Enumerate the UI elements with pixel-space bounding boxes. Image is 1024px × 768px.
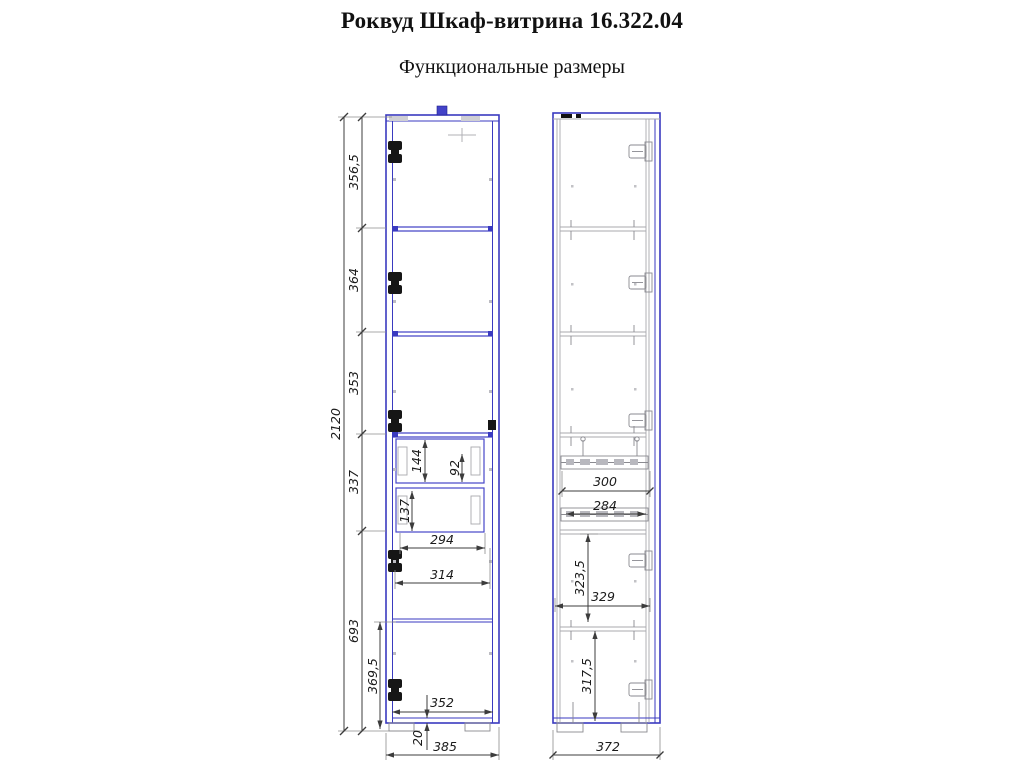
dim-overall-depth: 372 [596, 739, 620, 754]
side-feet [557, 702, 647, 732]
dim-overall-height: 2120 [328, 408, 343, 440]
dim-slide-inner-length: 284 [593, 498, 617, 513]
side-cabinet-outline [553, 113, 660, 723]
technical-drawing: 356,5 364 353 337 693 2120 369,5 144 92 … [0, 0, 1024, 768]
front-cabinet-outline [386, 115, 499, 723]
dim-drawer-bottom-inner-height: 137 [397, 499, 412, 523]
catch-fitting [488, 420, 496, 430]
side-dimensions: 300 284 323,5 329 317,5 372 [553, 471, 660, 760]
dim-drawer-inner-width: 294 [430, 532, 454, 547]
dim-drawer-top-inner-height: 144 [409, 449, 424, 473]
dim-section-2: 364 [346, 268, 361, 292]
dim-below-drawer-height: 323,5 [572, 560, 587, 596]
drawing-page: Роквуд Шкаф-витрина 16.322.04 Функционал… [0, 0, 1024, 768]
dim-overall-width: 385 [433, 739, 457, 754]
dim-inner-depth: 329 [591, 589, 615, 604]
hinge-icon [388, 679, 402, 701]
top-fittings [389, 116, 480, 121]
dim-bottom-inner-width: 352 [430, 695, 454, 710]
dim-bottom-compartment-height: 369,5 [365, 658, 380, 694]
side-view: 300 284 323,5 329 317,5 372 [553, 113, 660, 760]
crosshair-mark [448, 128, 476, 142]
hinge-icons [388, 141, 496, 701]
dim-section-5: 693 [346, 619, 361, 643]
front-dividers [393, 226, 493, 622]
dim-section-3: 353 [346, 371, 361, 395]
dim-drawer-opening-width: 314 [430, 567, 454, 582]
dim-base-thickness: 20 [410, 730, 425, 746]
hinge-icon [388, 141, 402, 163]
dim-drawer-top-front-height: 92 [447, 460, 462, 476]
hinge-icon [388, 272, 402, 294]
dim-section-1: 356,5 [346, 154, 361, 190]
hinge-icon [388, 410, 402, 432]
dim-section-4: 337 [346, 470, 361, 494]
dim-slide-outer-length: 300 [593, 474, 617, 489]
front-feet [389, 723, 490, 731]
top-rail-fitting [561, 114, 581, 118]
front-view: 356,5 364 353 337 693 2120 369,5 144 92 … [328, 106, 499, 760]
wall-bracket [437, 106, 447, 115]
dim-bottom-inner-height: 317,5 [579, 658, 594, 694]
